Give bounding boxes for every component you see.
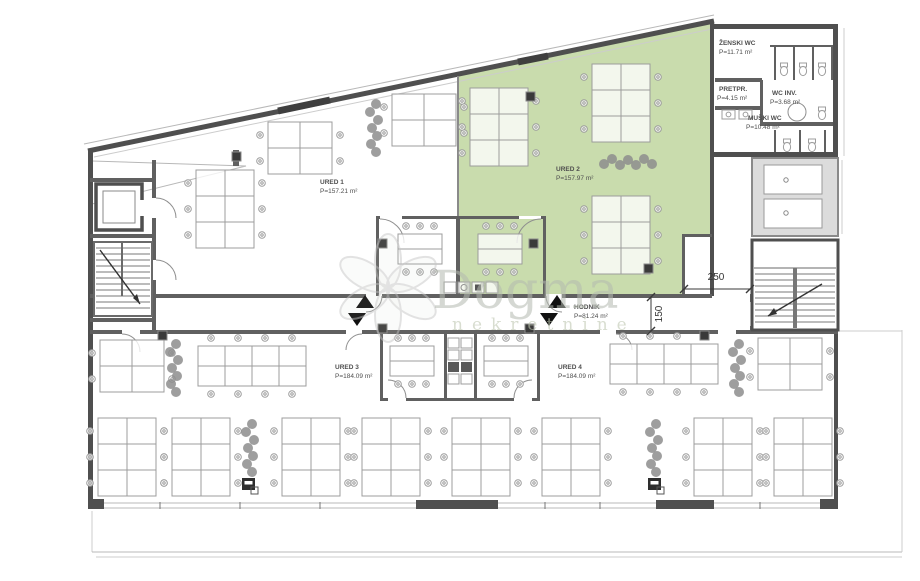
- desk-cluster: [89, 340, 176, 392]
- area-ured3: P=184.09 m²: [335, 373, 373, 380]
- elevator-left: [96, 184, 146, 230]
- desk-cluster: [271, 418, 352, 496]
- desk-cluster: [351, 418, 432, 496]
- stairs-right: [752, 240, 838, 330]
- long-table: [610, 333, 718, 396]
- desk-cluster: [747, 338, 834, 390]
- label-wc-inv: WC INV.: [772, 90, 797, 97]
- label-ured2: URED 2: [556, 166, 580, 173]
- label-ured4: URED 4: [558, 364, 582, 371]
- area-ured2: P=157.97 m²: [556, 175, 594, 182]
- plant: [241, 419, 259, 477]
- label-pretpr: PRETPR.: [719, 86, 747, 93]
- label-zenski-wc: ŽENSKI WC: [719, 38, 756, 47]
- desk-cluster: [161, 418, 242, 496]
- floor-plan-image: 250 150 URED 1 P=157.21 m² URED 2 P=157.…: [0, 0, 920, 581]
- dimension-150: 150: [647, 293, 665, 335]
- label-ured3: URED 3: [335, 364, 359, 371]
- area-ured4: P=184.09 m²: [558, 373, 596, 380]
- area-zenski-wc: P=11.71 m²: [719, 49, 753, 56]
- dimension-250: 250: [680, 272, 754, 293]
- printer-icon: [242, 478, 258, 494]
- desk-cluster: [531, 418, 612, 496]
- elevators-right: [752, 158, 842, 236]
- desk-cluster: [441, 418, 522, 496]
- area-pretpr: P=4.15 m²: [717, 95, 748, 102]
- label-ured1: URED 1: [320, 179, 344, 186]
- desk-cluster: [185, 170, 266, 248]
- desk-cluster: [87, 418, 168, 496]
- floor-plan-svg: 250 150 URED 1 P=157.21 m² URED 2 P=157.…: [0, 0, 920, 581]
- stairs-left: [94, 242, 152, 316]
- plant: [728, 339, 746, 397]
- watermark-subtitle: nekretnine: [452, 315, 636, 335]
- conference-table: [390, 335, 434, 388]
- printer-icon: [648, 478, 664, 494]
- dim-150-label: 150: [654, 305, 665, 322]
- desk-cluster: [763, 418, 844, 496]
- desk-cluster: [381, 94, 468, 146]
- area-ured1: P=157.21 m²: [320, 188, 358, 195]
- plant: [165, 339, 183, 397]
- right-core: [752, 158, 842, 330]
- left-core: [94, 184, 152, 316]
- plant: [645, 419, 663, 477]
- desk-cluster: [581, 64, 662, 142]
- conference-table: [484, 335, 528, 388]
- label-muski-wc: MUŠKI WC: [748, 113, 782, 122]
- dim-250-label: 250: [708, 272, 725, 283]
- long-table: [198, 335, 306, 398]
- watermark-brand: Dogma: [432, 261, 619, 321]
- area-wc-inv: P=3.68 m²: [770, 99, 801, 106]
- area-muski-wc: P=10.48 m²: [746, 124, 781, 131]
- desk-cluster: [683, 418, 764, 496]
- desk-cluster: [257, 122, 344, 174]
